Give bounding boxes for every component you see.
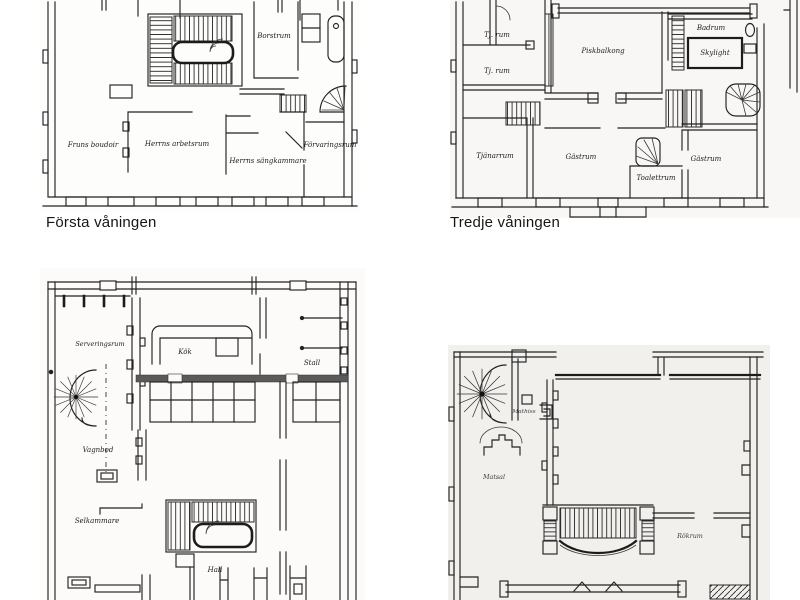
room-label-forvaringsrum: Förvaringsrum: [303, 141, 357, 149]
room-label-kok: Kök: [177, 348, 192, 356]
room-label-mathiss: Mathiss: [511, 409, 535, 415]
room-label-badrum: Badrum: [696, 24, 726, 32]
caption-third-floor: Tredje våningen: [450, 214, 560, 231]
room-label-vagnbod: Vagnbod: [83, 446, 114, 454]
room-label-stall: Stall: [304, 359, 320, 367]
room-label-toalettrum: Toalettrum: [636, 174, 675, 182]
room-label-serveringsrum: Serveringsrum: [75, 340, 124, 348]
room-label-gastrum-center: Gästrum: [566, 153, 597, 161]
room-label-gastrum-right: Gästrum: [691, 155, 722, 163]
room-label-rokrum: Rökrum: [676, 532, 703, 540]
room-label-fruns-boudoir: Fruns boudoir: [67, 141, 119, 149]
room-label-tj-rum-2: Tj. rum: [484, 67, 510, 75]
floor-plan-third-floor: Tj. rum Tj. rum Piskbalkong Badrum Skyli…: [450, 0, 800, 218]
scanned-floor-plan-page: Borstrum Fruns boudoir Herrns arbetsrum …: [0, 0, 800, 600]
room-label-hall: Hall: [207, 566, 223, 574]
floor-plan-first-floor: Borstrum Fruns boudoir Herrns arbetsrum …: [40, 0, 360, 212]
floor-plan-ground-floor: Serveringsrum Kök Stall Vagnbod Selkamma…: [40, 268, 365, 600]
room-label-tj-rum-1: Tj. rum: [484, 31, 510, 39]
room-label-borstrum: Borstrum: [256, 32, 291, 40]
room-label-matsal: Matsal: [482, 473, 505, 481]
floor-plan-second-floor: Mathiss Matsal Rökrum: [448, 345, 770, 600]
room-label-herrns-sangkammare: Herrns sängkammare: [228, 157, 306, 165]
room-label-herrns-arbetsrum: Herrns arbetsrum: [144, 140, 210, 148]
room-label-selkammare: Selkammare: [75, 517, 120, 525]
room-label-tjanarrum: Tjänarrum: [476, 152, 514, 160]
room-label-skylight: Skylight: [700, 49, 729, 57]
room-label-piskbalkong: Piskbalkong: [580, 47, 625, 55]
caption-first-floor: Första våningen: [46, 214, 157, 231]
